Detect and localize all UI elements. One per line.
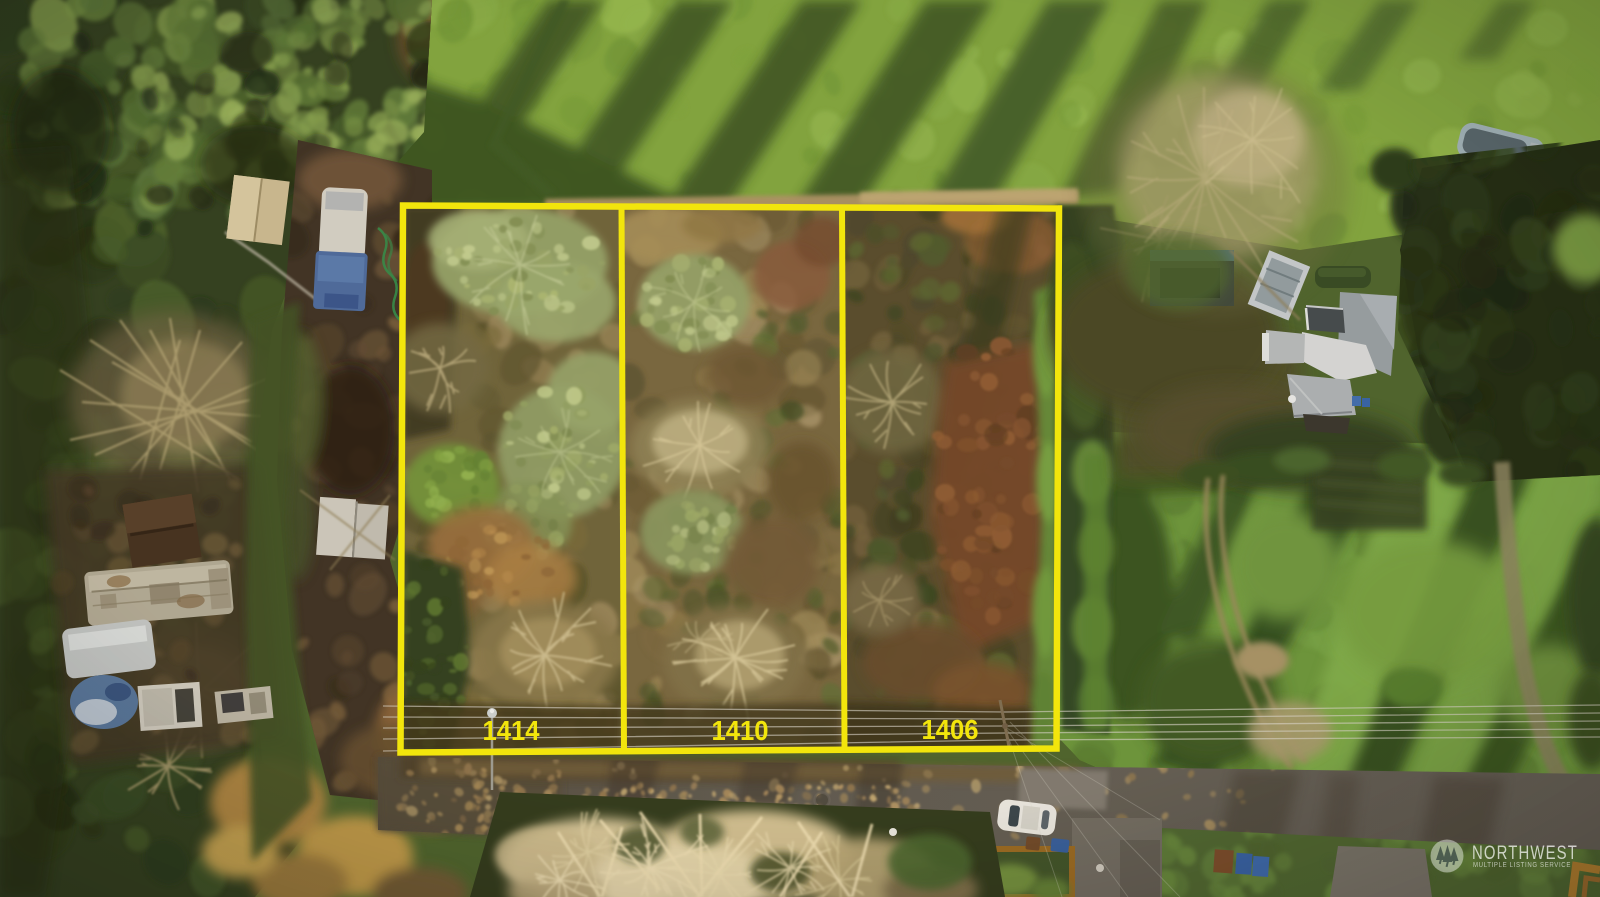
svg-text:1410: 1410 bbox=[712, 715, 769, 746]
svg-text:1414: 1414 bbox=[483, 715, 540, 746]
svg-text:MULTIPLE LISTING SERVICE: MULTIPLE LISTING SERVICE bbox=[1473, 860, 1571, 869]
svg-text:1406: 1406 bbox=[922, 714, 979, 745]
